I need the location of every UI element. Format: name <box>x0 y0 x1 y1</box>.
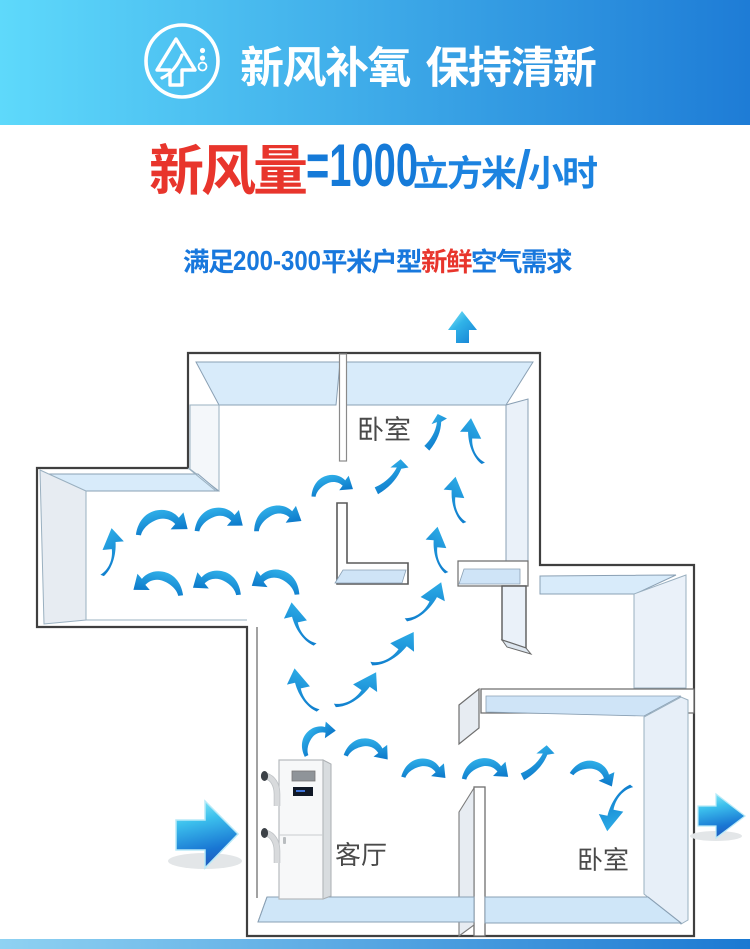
svg-text:200-300: 200-300 <box>233 245 321 276</box>
svg-text:=1000: =1000 <box>306 132 418 199</box>
